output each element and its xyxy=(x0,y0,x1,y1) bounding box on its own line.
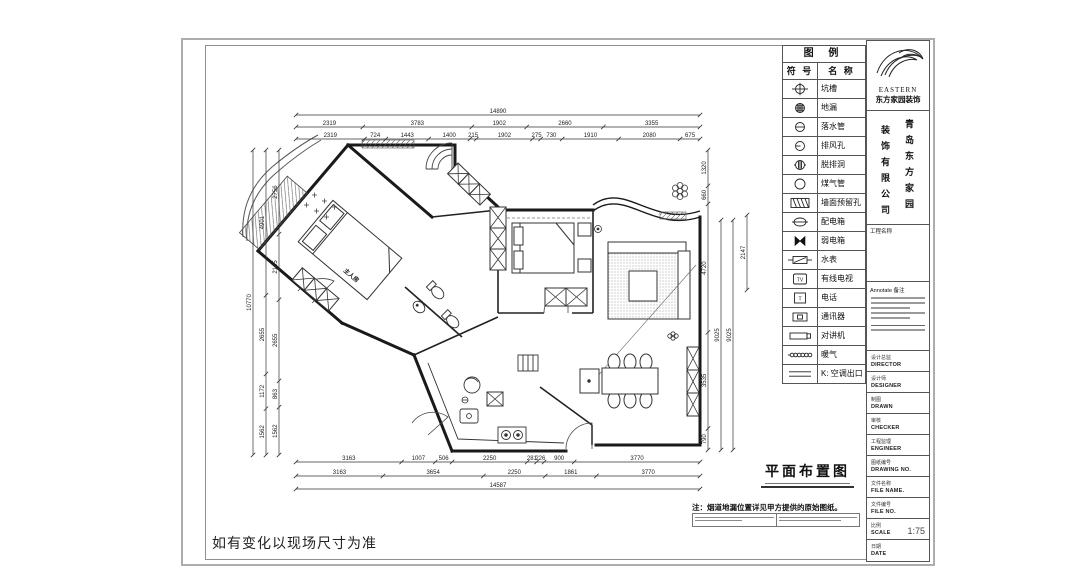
annotate-line xyxy=(871,312,925,314)
drawing-title: 平面布置图 xyxy=(761,461,854,488)
sofa-set xyxy=(608,242,690,319)
hatched-rect-icon xyxy=(783,194,818,212)
dim-label: 724 xyxy=(370,133,381,139)
dim-label: 1320 xyxy=(702,161,708,175)
company-name: 青岛东方家园 装饰有限公司 xyxy=(867,111,929,225)
dim-chain: 132066047203535790 xyxy=(702,148,710,452)
note-cell xyxy=(777,514,860,526)
floor-plan-svg: 主人房 xyxy=(200,55,780,515)
dim-label: 275 xyxy=(532,133,543,139)
legend-header: 符 号 名 称 xyxy=(783,63,865,80)
dim-label: 2145 xyxy=(273,260,279,274)
row-label-en: ENGINEER xyxy=(867,445,929,452)
title-block-rows: 设计总监DIRECTOR设计师DESIGNER制图DRAWN审核CHECKER工… xyxy=(867,351,929,561)
title-block-row-scale: 比例SCALE1:75 xyxy=(867,519,929,540)
dim-label: 9025 xyxy=(727,328,733,342)
legend-row: 水表 xyxy=(783,251,865,270)
dim-chain: 3163100750622502812269003770 xyxy=(294,456,702,464)
dim-label: 3783 xyxy=(411,121,425,127)
legend-label: 弱电箱 xyxy=(818,232,865,250)
dim-label: 4901 xyxy=(260,215,266,229)
dim-label: 900 xyxy=(554,456,565,462)
drawing-sheet: 主人房 xyxy=(0,0,1074,576)
dim-label: 2250 xyxy=(508,470,522,476)
dim-chain: 14890 xyxy=(294,109,702,117)
row-label-en: DRAWING NO. xyxy=(867,466,929,473)
comm-box-icon xyxy=(783,308,818,326)
legend-row: 排风孔 xyxy=(783,137,865,156)
dim-label: 790 xyxy=(702,434,708,445)
legend-label: 煤气管 xyxy=(818,175,865,193)
legend-row: 落水管 xyxy=(783,118,865,137)
legend-col-symbol: 符 号 xyxy=(783,63,818,79)
basin-icon xyxy=(411,299,427,315)
legend-row: 地漏 xyxy=(783,99,865,118)
title-block: EASTERN 东方家园装饰 青岛东方家园 装饰有限公司 工程名称 Annota… xyxy=(866,40,930,562)
dim-label: 1910 xyxy=(584,133,598,139)
legend-row: 煤气管 xyxy=(783,175,865,194)
site-dimension-note: 如有变化以现场尺寸为准 xyxy=(212,533,377,553)
dim-label: 10770 xyxy=(247,293,253,310)
dim-chain: 4901265511721562 xyxy=(260,148,268,457)
annotate-line xyxy=(871,297,925,299)
company-logo: EASTERN 东方家园装饰 xyxy=(867,41,929,111)
dim-label: 3654 xyxy=(426,470,440,476)
title-block-row-director: 设计总监DIRECTOR xyxy=(867,351,929,372)
legend-row: TV有线电视 xyxy=(783,270,865,289)
legend-row: 脱排洞 xyxy=(783,156,865,175)
drawing-note: 注：烟道地漏位置详见甲方提供的原始图纸。 xyxy=(692,502,842,513)
dim-label: 3163 xyxy=(342,456,356,462)
title-block-row-drawn: 制图DRAWN xyxy=(867,393,929,414)
legend-label: 地漏 xyxy=(818,99,865,117)
row-label-cn: 文件编号 xyxy=(867,498,929,508)
legend-table: 图 例 符 号 名 称 坑槽地漏落水管排风孔脱排洞煤气管墙面预留孔配电箱弱电箱水… xyxy=(782,45,866,384)
xbox-cabinet xyxy=(490,207,506,270)
title-block-row-file-no-: 文件编号FILE NO. xyxy=(867,498,929,519)
row-label-cn: 设计师 xyxy=(867,372,929,382)
dim-label: 730 xyxy=(546,133,557,139)
row-label-cn: 审核 xyxy=(867,414,929,424)
row-label-cn: 设计总监 xyxy=(867,351,929,361)
circle-icon xyxy=(783,175,818,193)
dining-set xyxy=(580,354,658,408)
legend-row: T电话 xyxy=(783,289,865,308)
dim-label: 2319 xyxy=(323,121,337,127)
row-label-en: DIRECTOR xyxy=(867,361,929,368)
dim-label: 2756 xyxy=(273,185,279,199)
legend-row: 对讲机 xyxy=(783,327,865,346)
note-strip xyxy=(692,513,860,527)
row-label-cn: 日期 xyxy=(867,540,929,550)
dim-chain: 231972414431400215190227573019102080675 xyxy=(294,133,702,141)
legend-title: 图 例 xyxy=(783,46,865,63)
row-label-en: DATE xyxy=(867,550,929,557)
xbox-cabinet xyxy=(448,163,491,205)
logo-text-en: EASTERN xyxy=(867,86,929,94)
row-label-cn: 图纸编号 xyxy=(867,456,929,466)
dim-label: 1861 xyxy=(564,470,578,476)
dim-label: 2660 xyxy=(558,121,572,127)
dim-chain: 9025 xyxy=(727,218,735,452)
toilet-icon xyxy=(426,281,447,302)
dim-label: 9025 xyxy=(715,328,721,342)
dim-label: 2655 xyxy=(260,327,266,341)
dim-label: 2147 xyxy=(741,245,747,259)
intercom-icon xyxy=(783,327,818,345)
dim-label: 506 xyxy=(439,456,450,462)
project-name-box: 工程名称 xyxy=(867,225,929,282)
bowtie-icon xyxy=(783,232,818,250)
bedroom2 xyxy=(502,218,591,273)
note-cell xyxy=(693,514,777,526)
plant-small-icon xyxy=(668,332,678,340)
legend-label: 落水管 xyxy=(818,118,865,136)
legend-row: 配电箱 xyxy=(783,213,865,232)
dim-label: 1902 xyxy=(498,133,512,139)
title-block-row-date: 日期DATE xyxy=(867,540,929,561)
curved-partition xyxy=(426,143,452,169)
stadium-dash-icon xyxy=(783,213,818,231)
dim-label: 2080 xyxy=(643,133,657,139)
annotate-label: Annotate 备注 xyxy=(870,284,926,294)
phone-box-icon: T xyxy=(783,289,818,307)
legend-label: 通讯器 xyxy=(818,308,865,326)
dim-label: 1902 xyxy=(493,121,507,127)
legend-label: 配电箱 xyxy=(818,213,865,231)
xbox-cabinet xyxy=(487,392,503,406)
annotate-divider xyxy=(871,325,925,326)
row-label-en: DESIGNER xyxy=(867,382,929,389)
dim-label: 4720 xyxy=(702,261,708,275)
legend-row: 坑槽 xyxy=(783,80,865,99)
dim-chain: 9025 xyxy=(715,218,723,452)
annotate-box: Annotate 备注 xyxy=(867,282,929,351)
legend-row: 弱电箱 xyxy=(783,232,865,251)
title-block-row-file-name-: 文件名称FILE NAME. xyxy=(867,477,929,498)
row-label-en: DRAWN xyxy=(867,403,929,410)
crosshair-circle-icon xyxy=(783,80,818,98)
legend-col-name: 名 称 xyxy=(818,63,865,79)
title-block-row-engineer: 工程监理ENGINEER xyxy=(867,435,929,456)
legend-label: 墙面预留孔 xyxy=(818,194,865,212)
dim-label: 3535 xyxy=(702,373,708,387)
dim-label: 3770 xyxy=(630,456,644,462)
tv-box-icon: TV xyxy=(783,270,818,288)
legend-label: 坑槽 xyxy=(818,80,865,98)
title-block-row-drawing-no-: 图纸编号DRAWING NO. xyxy=(867,456,929,477)
dim-chain: 31633654225018613770 xyxy=(294,470,702,478)
hatched-circle-icon xyxy=(783,99,818,117)
dim-label: 14890 xyxy=(490,109,507,115)
dim-label: 14587 xyxy=(490,483,507,489)
dim-label: 1562 xyxy=(260,425,266,439)
row-label-cn: 制图 xyxy=(867,393,929,403)
svg-text:T: T xyxy=(798,296,802,302)
dim-label: 675 xyxy=(685,133,696,139)
legend-label: 水表 xyxy=(818,251,865,269)
annotate-line xyxy=(871,302,925,304)
dim-label: 2655 xyxy=(273,333,279,347)
circle-dash-icon xyxy=(783,118,818,136)
legend-label: K: 空调出口 xyxy=(818,365,865,383)
dim-label: 1007 xyxy=(412,456,426,462)
legend-row: 暖气 xyxy=(783,346,865,365)
legend-label: 电话 xyxy=(818,289,865,307)
ac-outlet-icon xyxy=(783,365,818,383)
dim-chain: 14587 xyxy=(294,483,702,491)
title-block-row-checker: 审核CHECKER xyxy=(867,414,929,435)
plant-icon xyxy=(673,183,688,200)
dim-label: 3770 xyxy=(642,470,656,476)
dim-chain: 2147 xyxy=(741,213,749,292)
svg-text:TV: TV xyxy=(797,277,804,283)
legend-label: 对讲机 xyxy=(818,327,865,345)
dim-chain: 23193783190226603355 xyxy=(294,121,702,129)
legend-row: 通讯器 xyxy=(783,308,865,327)
dim-label: 1400 xyxy=(443,133,457,139)
dim-label: 660 xyxy=(702,189,708,200)
logo-text-cn: 东方家园装饰 xyxy=(867,94,929,105)
row-label-cn: 工程监理 xyxy=(867,435,929,445)
dim-label: 3355 xyxy=(645,121,659,127)
row-label-cn: 文件名称 xyxy=(867,477,929,487)
company-name-col1: 青岛东方家园 xyxy=(903,119,916,215)
row-label-en: CHECKER xyxy=(867,424,929,431)
company-name-col2: 装饰有限公司 xyxy=(879,125,892,221)
window-hatch-right xyxy=(660,212,686,219)
dim-label: 2250 xyxy=(483,456,497,462)
circle-halfline-icon xyxy=(783,137,818,155)
legend-label: 暖气 xyxy=(818,346,865,364)
dim-label: 1562 xyxy=(273,424,279,438)
water-meter-icon xyxy=(783,251,818,269)
project-name-label: 工程名称 xyxy=(867,225,929,235)
window-hatch-top xyxy=(362,140,414,148)
logo-swirl-icon xyxy=(869,43,927,83)
annotate-line xyxy=(871,329,925,331)
row-value: 1:75 xyxy=(907,526,925,536)
legend-label: 有线电视 xyxy=(818,270,865,288)
dim-label: 3163 xyxy=(333,470,347,476)
legend-row: 墙面预留孔 xyxy=(783,194,865,213)
legend-rows: 坑槽地漏落水管排风孔脱排洞煤气管墙面预留孔配电箱弱电箱水表TV有线电视T电话通讯… xyxy=(783,80,865,383)
annotate-line xyxy=(871,307,910,309)
xbox-cabinet xyxy=(687,347,699,416)
radiator-icon xyxy=(783,346,818,364)
title-block-row-designer: 设计师DESIGNER xyxy=(867,372,929,393)
legend-label: 脱排洞 xyxy=(818,156,865,174)
legend-row: K: 空调出口 xyxy=(783,365,865,383)
xbox-cabinet xyxy=(545,288,587,306)
dim-label: 2319 xyxy=(324,133,338,139)
vent-circle-icon xyxy=(783,156,818,174)
row-label-en: FILE NAME. xyxy=(867,487,929,494)
dim-label: 863 xyxy=(273,388,279,399)
annotate-line xyxy=(871,317,910,319)
row-label-en: FILE NO. xyxy=(867,508,929,515)
legend-label: 排风孔 xyxy=(818,137,865,155)
dim-label: 1443 xyxy=(401,133,415,139)
dim-label: 1172 xyxy=(260,384,266,398)
